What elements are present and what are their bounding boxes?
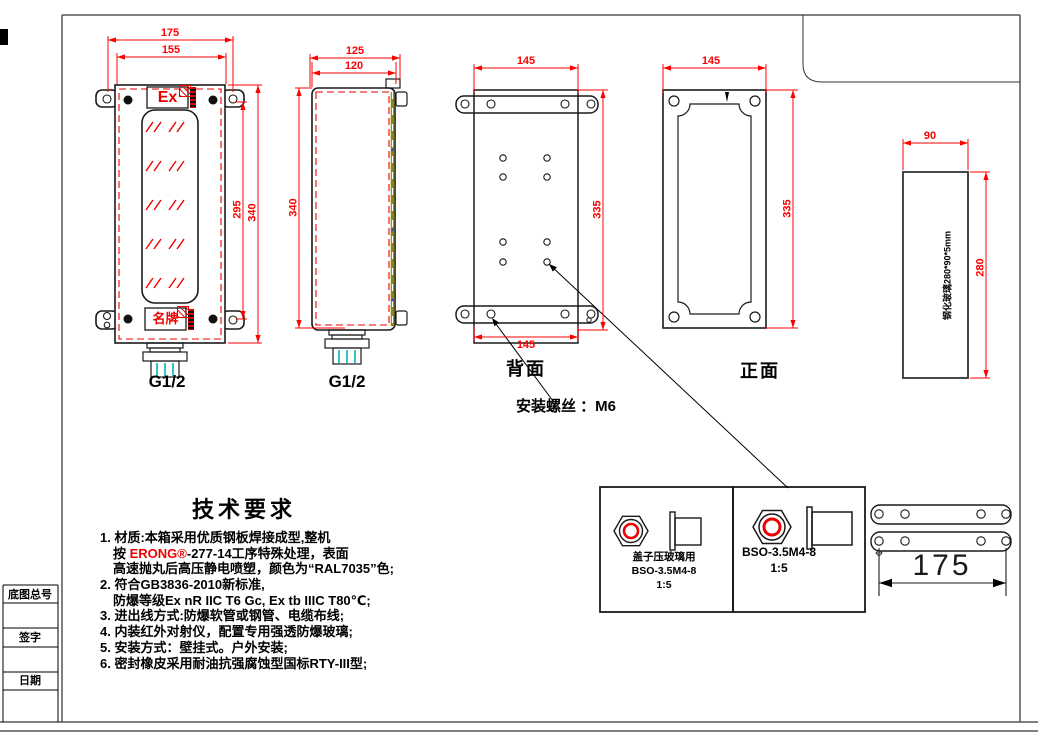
dim-glass-90: 90	[905, 131, 955, 142]
dim-side-125: 125	[330, 46, 380, 57]
title-block-row-drawing-no: 底图总号	[4, 590, 56, 601]
tech-item3: 3. 进出线方式:防爆软管或钢管、电缆布线;	[100, 609, 344, 622]
side-view	[312, 79, 407, 364]
dim-front-155: 155	[146, 45, 196, 56]
tech-item1-line2-prefix: 按	[113, 546, 130, 561]
dim-front-340: 340	[248, 193, 259, 233]
tech-title: 技术要求	[192, 499, 296, 521]
front-view	[96, 85, 244, 377]
strip-dim-175: 175	[897, 551, 987, 581]
glass-spec-note: 钢化玻璃280*90*5mm	[944, 211, 953, 341]
detail-left-part: BSO-3.5M4-8	[604, 566, 724, 577]
dim-back-145-top: 145	[501, 56, 551, 67]
title-block-row-date: 日期	[4, 676, 56, 687]
face-view	[663, 90, 766, 328]
gland-label-front: G1/2	[141, 373, 193, 390]
dim-back-335: 335	[593, 190, 604, 230]
tech-item1-line2: 按 ERONG®-277-14工序特殊处理，表面	[113, 547, 349, 560]
tech-item1-line2-suffix: -277-14工序特殊处理，表面	[187, 546, 349, 561]
tech-item6: 6. 密封橡皮采用耐油抗强腐蚀型国标RTY-III型;	[100, 657, 367, 670]
tech-item2-line2: 防爆等级Ex nR IIC T6 Gc, Ex tb IIIC T80℃;	[113, 594, 371, 607]
tech-item2-line1: 2. 符合GB3836-2010新标准,	[100, 578, 265, 591]
dim-glass-280: 280	[976, 248, 987, 288]
gland-label-side: G1/2	[321, 373, 373, 390]
dim-side-120: 120	[329, 61, 379, 72]
ex-marking-label: Ex	[147, 90, 188, 106]
tech-item1-line3: 高速抛丸后高压静电喷塑，颜色为“RAL7035”色;	[113, 562, 394, 575]
title-block-grid	[3, 585, 58, 722]
stripe-mark-bottom	[188, 309, 194, 330]
title-block-row-signature: 签字	[4, 633, 56, 644]
screw-note: 安装螺丝 ：M6	[516, 399, 616, 414]
face-view-caption: 正面	[740, 362, 780, 380]
dim-back-145-bottom: 145	[501, 340, 551, 351]
dim-face-145: 145	[686, 56, 736, 67]
tech-brand: ERONG®	[130, 546, 187, 561]
detail-left-scale: 1:5	[604, 580, 724, 591]
nameplate-label: 名牌	[145, 312, 186, 325]
detail-right-scale: 1:5	[719, 562, 839, 574]
standoff-front-left	[614, 512, 701, 550]
detail-left-use-note: 盖子压玻璃用	[604, 552, 724, 563]
glass-panel-view	[903, 172, 968, 378]
back-view	[456, 90, 598, 343]
standoff-front-right	[753, 507, 852, 549]
cable-gland-side	[325, 330, 369, 364]
back-view-caption: 背面	[506, 360, 546, 378]
dim-side-340: 340	[289, 188, 300, 228]
tech-item1-line1: 1. 材质:本箱采用优质钢板焊接成型,整机	[100, 531, 330, 544]
tech-item4: 4. 内装红外对射仪，配置专用强透防爆玻璃;	[100, 625, 353, 638]
tech-item5: 5. 安装方式：壁挂式。户外安装;	[100, 641, 288, 654]
dim-face-335: 335	[783, 189, 794, 229]
drawing-sheet: Ex 名牌 G1/2 G1/2 175 155 295 340 125 120 …	[0, 0, 1038, 733]
dim-front-175: 175	[145, 28, 195, 39]
stripe-mark-top	[190, 87, 196, 108]
detail-right-part: BSO-3.5M4-8	[719, 546, 839, 558]
dim-front-295: 295	[233, 190, 244, 230]
